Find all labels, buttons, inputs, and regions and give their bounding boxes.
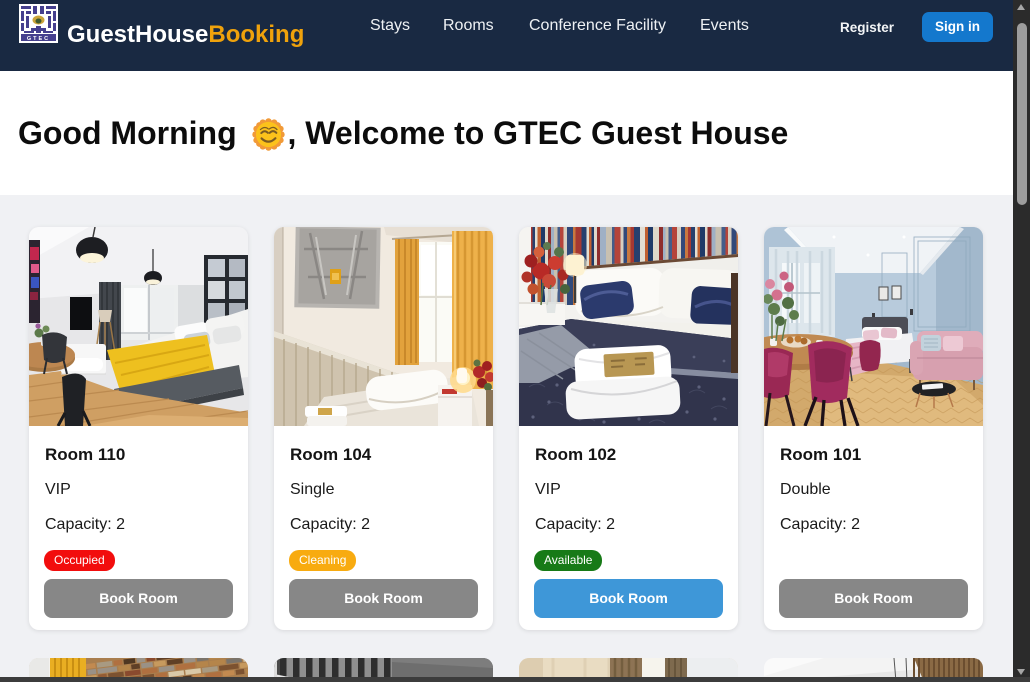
svg-text:GTEC: GTEC — [27, 36, 50, 42]
